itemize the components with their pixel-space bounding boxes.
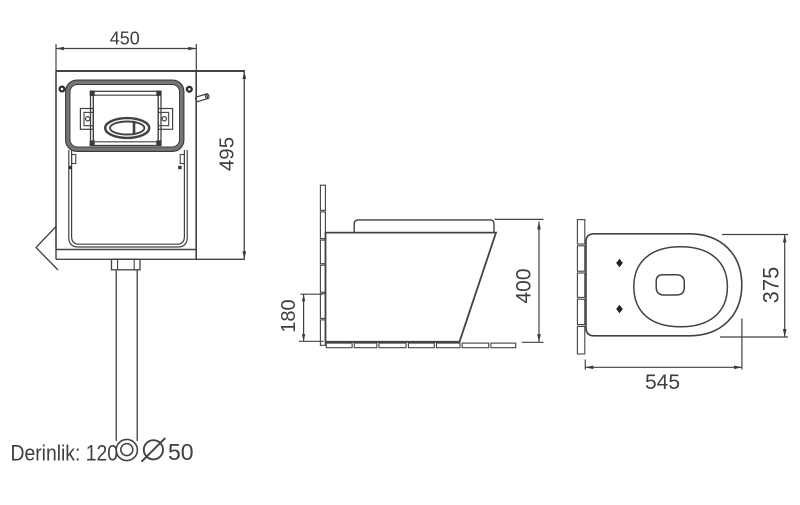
svg-text:450: 450 [110, 29, 140, 49]
svg-text:Derinlik: 120: Derinlik: 120 [11, 441, 118, 466]
svg-text:375: 375 [759, 267, 784, 304]
svg-text:180: 180 [278, 299, 300, 332]
svg-text:400: 400 [513, 268, 536, 303]
svg-text:50: 50 [168, 439, 194, 465]
svg-text:545: 545 [645, 371, 680, 394]
svg-text:495: 495 [216, 137, 239, 171]
